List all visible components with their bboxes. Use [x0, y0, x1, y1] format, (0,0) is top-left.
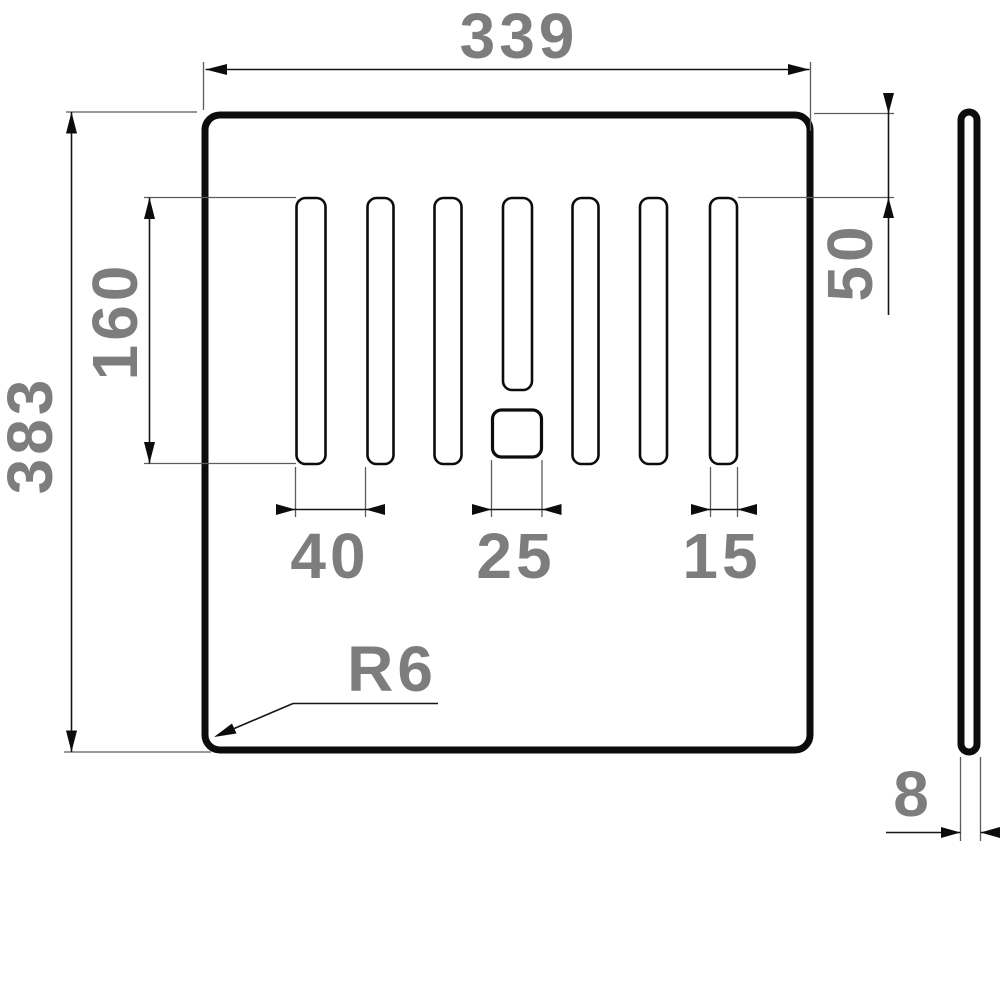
- drain-slot-5: [573, 198, 599, 464]
- arrowhead: [206, 64, 228, 75]
- drain-slot-2: [368, 198, 394, 464]
- dim-label-corner-radius: R6: [347, 633, 437, 705]
- square-hole: [493, 410, 542, 457]
- dim-label-slot-pitch: 40: [290, 520, 369, 592]
- dim-label-slot-width: 15: [682, 520, 761, 592]
- arrowhead: [144, 442, 155, 464]
- dim-thickness: 8: [886, 757, 1000, 841]
- arrowhead: [981, 827, 1000, 838]
- dim-overall-height: 383: [0, 112, 211, 752]
- drawing-page: 339 383 160 50: [0, 0, 1000, 998]
- dim-label-slot-length: 160: [79, 262, 151, 381]
- dim-label-slot-top-offset: 50: [814, 222, 886, 301]
- arrowhead: [883, 198, 894, 219]
- arrowhead: [788, 64, 810, 75]
- drain-slot-4-short: [503, 198, 532, 390]
- arrowhead: [144, 198, 155, 220]
- dim-label-thickness: 8: [893, 758, 933, 830]
- drain-slot-6: [640, 198, 667, 464]
- plate-side-view: [961, 112, 977, 752]
- dim-overall-width: 339: [204, 0, 811, 131]
- technical-drawing-canvas: 339 383 160 50: [0, 0, 1000, 998]
- drain-slot-3: [435, 198, 462, 464]
- dim-label-overall-width: 339: [460, 0, 579, 72]
- arrowhead: [66, 112, 77, 134]
- drain-slot-1: [297, 198, 326, 464]
- arrowhead: [66, 731, 77, 753]
- arrowhead: [883, 93, 894, 114]
- dim-label-square-hole-width: 25: [476, 520, 555, 592]
- arrowhead: [941, 827, 961, 838]
- drain-slot-7: [710, 198, 737, 464]
- dim-label-overall-height: 383: [0, 376, 66, 495]
